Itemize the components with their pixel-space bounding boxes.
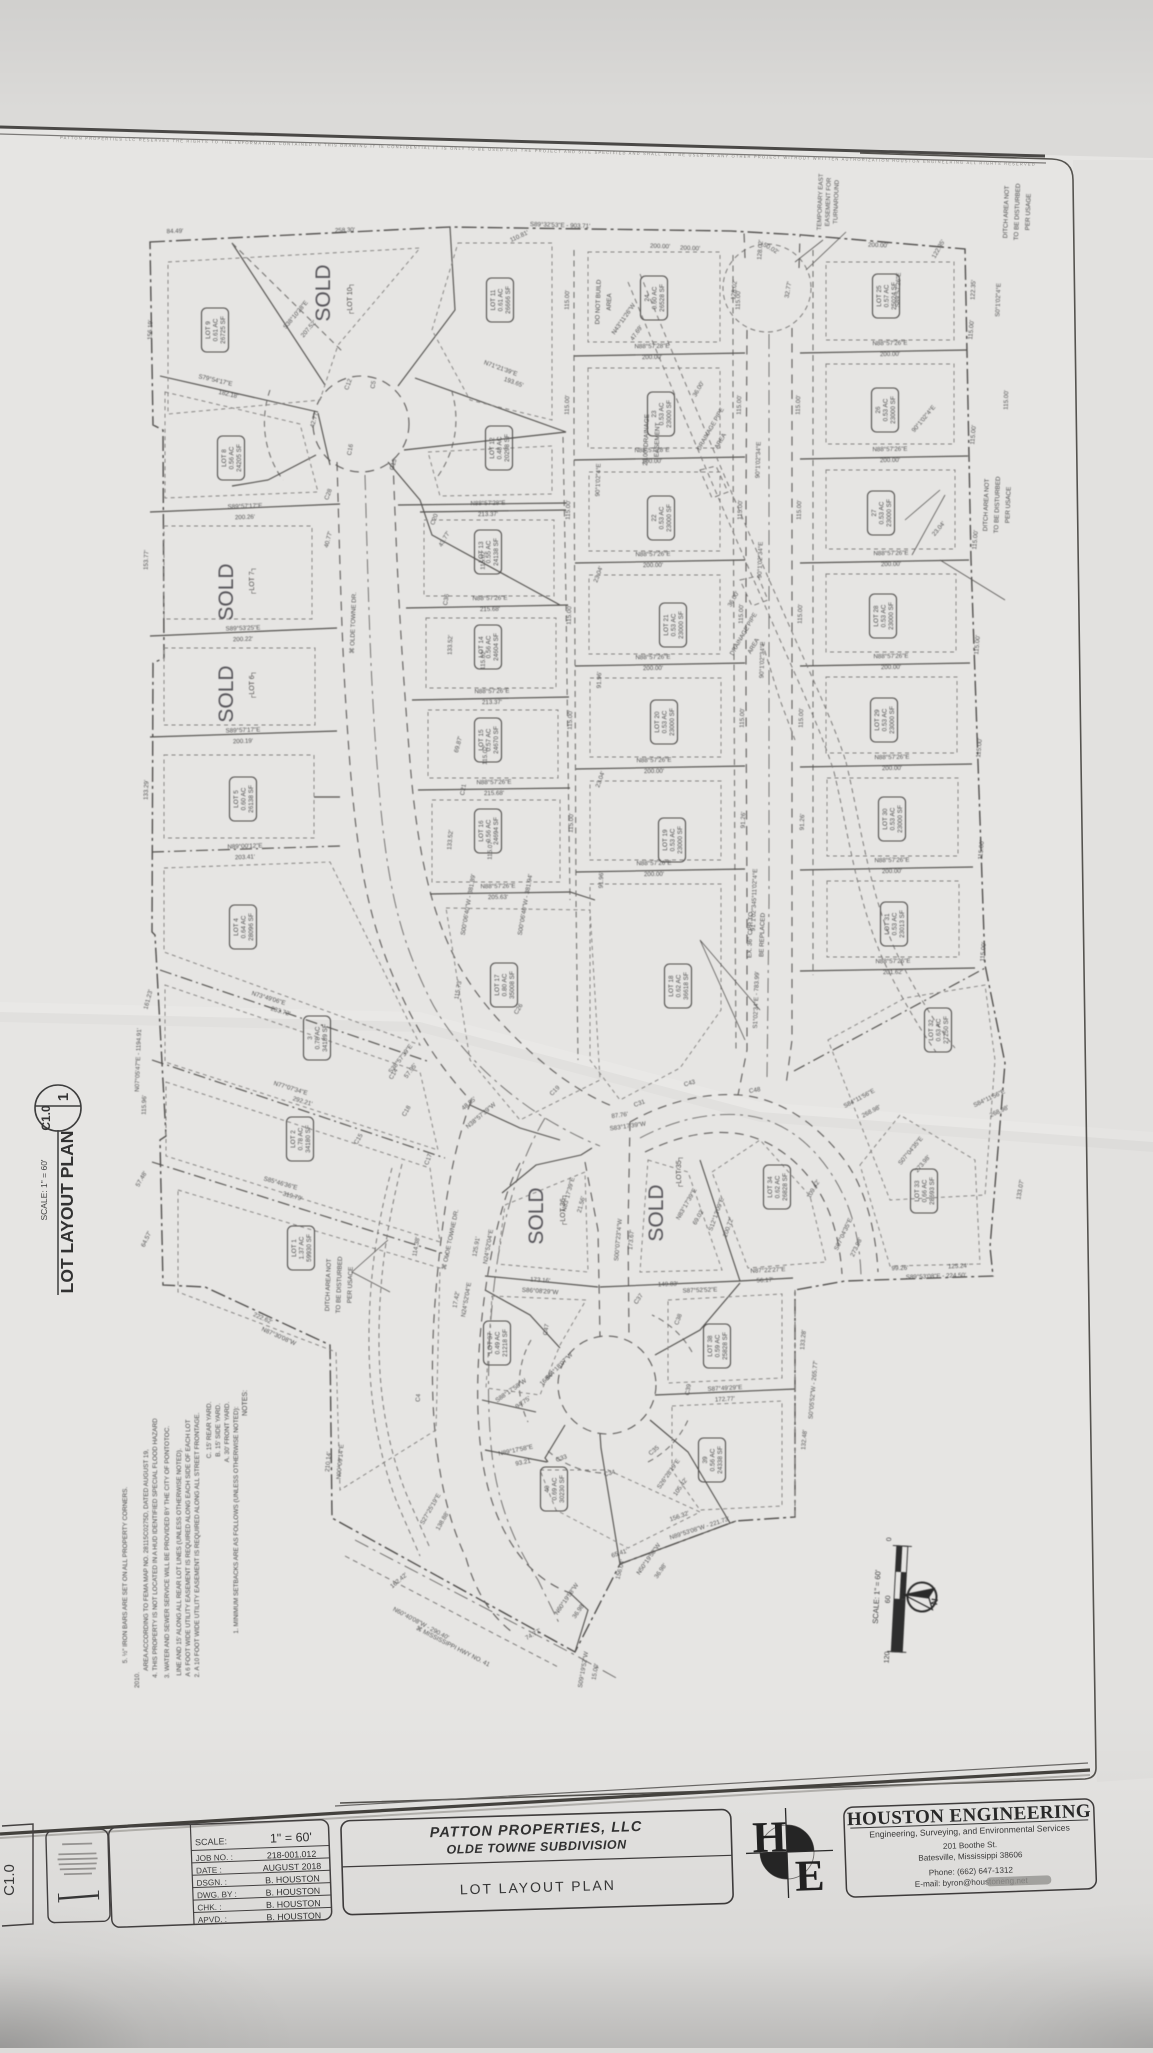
svg-text:EASEMENT: EASEMENT [653,422,661,457]
svg-text:LOT 20: LOT 20 [654,711,661,733]
svg-text:SOLD: SOLD [215,563,238,620]
svg-text:26666 SF: 26666 SF [505,286,512,314]
svg-text:99.26': 99.26' [891,1265,908,1273]
svg-text:LOT 19: LOT 19 [662,829,669,851]
svg-text:SOLD: SOLD [645,1184,668,1241]
svg-text:34189 SF: 34189 SF [322,1024,329,1052]
svg-text:200.00': 200.00' [643,665,663,672]
svg-text:A 6 FOOT WIDE UTILITY EASEMENT: A 6 FOOT WIDE UTILITY EASEMENT IS REQUIR… [185,1419,192,1676]
svg-text:2. A 10 FOOT WIDE UTILITY EAS: 2. A 10 FOOT WIDE UTILITY EASEMENT IS RE… [194,1412,201,1677]
svg-text:24138 SF: 24138 SF [493,538,500,566]
svg-text:90°1'02"34°E: 90°1'02"34°E [754,442,762,479]
svg-text:200.00': 200.00' [650,243,670,251]
svg-text:N88°57'26"E: N88°57'26"E [636,860,671,868]
svg-text:0: 0 [886,1537,893,1541]
svg-text:0.80 AC: 0.80 AC [502,973,509,996]
svg-text:LOT 5: LOT 5 [233,790,240,808]
svg-text:N88°57'26"E: N88°57'26"E [874,754,909,762]
svg-text:4. THIS PROPERTY IS NOT LOCAT: 4. THIS PROPERTY IS NOT LOCATED IN A HUD… [152,1418,159,1678]
svg-text:0.69 AC: 0.69 AC [552,1477,559,1500]
svg-text:SOLD: SOLD [215,665,238,722]
svg-text:0.57 AC: 0.57 AC [486,728,493,751]
svg-text:24670 SF: 24670 SF [493,726,500,754]
svg-text:0.57 AC: 0.57 AC [884,284,891,307]
svg-text:213.37': 213.37' [478,511,498,518]
svg-text:133.29': 133.29' [143,780,151,800]
svg-text:S0°1'02"4°E: S0°1'02"4°E [994,283,1002,317]
svg-text:115.00': 115.00' [567,710,575,730]
svg-text:115.00': 115.00' [737,500,745,520]
svg-text:N88°57'26"E: N88°57'26"E [872,340,907,348]
svg-text:115.00': 115.00' [566,605,574,625]
svg-text:NOTES:: NOTES: [242,1390,249,1416]
svg-text:125.24': 125.24' [948,1263,968,1271]
svg-text:24: 24 [644,294,651,302]
svg-text:215.68': 215.68' [484,790,504,797]
svg-text:205.63': 205.63' [488,894,508,901]
svg-text:133.52': 133.52' [447,635,455,655]
svg-text:0.66 AC: 0.66 AC [922,1179,929,1202]
svg-text:2010.: 2010. [134,1672,141,1688]
svg-text:LOT 13: LOT 13 [478,541,485,563]
svg-text:N88°57'26"E: N88°57'26"E [474,688,509,696]
svg-text:N88°57'26"E: N88°57'26"E [472,595,507,603]
svg-text:N88°57'26"E: N88°57'26"E [874,857,909,865]
svg-text:┌LOT 36┐: ┌LOT 36┐ [560,1193,567,1226]
svg-text:N88°57'28"E: N88°57'28"E [634,343,669,351]
svg-text:27250 SF: 27250 SF [943,1016,950,1044]
svg-text:LOT 21: LOT 21 [663,614,670,636]
svg-text:LOT 15: LOT 15 [478,729,485,751]
svg-text:0.48 AC: 0.48 AC [497,436,504,459]
svg-text:213.37': 213.37' [482,699,502,706]
svg-text:N88°57'26"E: N88°57'26"E [873,653,908,661]
svg-text:23: 23 [651,410,658,418]
svg-text:N89°00'12"E: N89°00'12"E [227,842,262,850]
svg-text:LOT 4: LOT 4 [233,918,240,936]
svg-text:23000 SF: 23000 SF [890,396,897,424]
svg-text:115.00': 115.00' [568,813,576,833]
svg-text:0.55 AC: 0.55 AC [486,540,493,563]
svg-text:0.53 AC: 0.53 AC [882,708,889,731]
svg-text:27: 27 [871,509,878,517]
svg-text:200.22': 200.22' [233,636,253,644]
svg-text:200.00': 200.00' [882,868,902,875]
svg-text:23000 SF: 23000 SF [897,805,904,833]
svg-text:120: 120 [884,1651,892,1663]
svg-text:156.19': 156.19' [147,320,155,340]
svg-text:200.00': 200.00' [882,765,902,772]
svg-text:PER USACE: PER USACE [1004,487,1012,524]
svg-text:0.60 AC: 0.60 AC [652,286,659,309]
svg-text:115.00': 115.00' [736,395,744,415]
svg-text:S89°57'17"E: S89°57'17"E [225,726,260,734]
svg-text:LOT 17: LOT 17 [494,974,501,996]
svg-text:203.41': 203.41' [235,854,255,862]
svg-text:0.61 AC: 0.61 AC [498,288,505,311]
svg-text:23000 SF: 23000 SF [677,826,684,854]
svg-text:60: 60 [885,1595,892,1603]
svg-text:0.56 AC: 0.56 AC [710,1448,717,1471]
svg-text:23000 SF: 23000 SF [889,706,896,734]
svg-text:0.62 AC: 0.62 AC [676,974,683,997]
svg-text:23013 SF: 23013 SF [899,910,906,938]
svg-text:0.60 AC: 0.60 AC [241,787,248,810]
svg-text:LOT 34: LOT 34 [767,1176,774,1198]
svg-text:N88°57'26"E: N88°57'26"E [875,958,910,966]
svg-text:115.00': 115.00' [1003,390,1011,410]
svg-text:0.63 AC: 0.63 AC [936,1018,943,1041]
svg-text:3: 3 [307,1036,314,1040]
svg-text:115.00': 115.00' [797,604,805,624]
svg-text:115.00': 115.00' [564,290,572,310]
svg-text:0.53 AC: 0.53 AC [659,402,666,425]
svg-text:N88°57'26"E: N88°57'26"E [636,757,671,765]
svg-text:0.53 AC: 0.53 AC [662,710,669,733]
svg-text:0.53 AC: 0.53 AC [890,807,897,830]
svg-text:200.19': 200.19' [233,738,253,746]
svg-text:LOT 37: LOT 37 [487,1332,494,1354]
svg-text:258.30': 258.30' [335,227,355,235]
svg-text:S87°52'52"E: S87°52'52"E [682,1286,717,1294]
svg-text:N88°57'26"E: N88°57'26"E [480,883,515,891]
svg-text:90°1'02"34°E: 90°1'02"34°E [756,542,764,579]
svg-text:0.53 AC: 0.53 AC [879,501,886,524]
svg-text:0.59 AC: 0.59 AC [715,1334,722,1357]
svg-text:LOT 1: LOT 1 [291,1239,298,1257]
svg-text:S89°57'17"E: S89°57'17"E [227,502,262,510]
svg-text:A. 30' FRONT YARD.: A. 30' FRONT YARD. [224,1402,231,1463]
svg-text:N88°57'26"E: N88°57'26"E [873,550,908,558]
svg-text:90°1'02"4°E: 90°1'02"4°E [594,463,602,496]
svg-text:LOT 33: LOT 33 [914,1180,921,1202]
svg-text:N88°57'28"E: N88°57'28"E [634,447,669,455]
svg-text:LOT 9: LOT 9 [205,321,212,339]
svg-text:5. ½" IRON BARS ARE SET ON AL: 5. ½" IRON BARS ARE SET ON ALL PROPERTY … [121,1487,129,1664]
svg-text:115.00': 115.00' [795,395,803,415]
svg-text:84.49': 84.49' [166,228,183,236]
svg-text:N88°57'26"E: N88°57'26"E [476,779,511,787]
svg-text:0.53 AC: 0.53 AC [883,398,890,421]
svg-text:26528 SF: 26528 SF [659,284,666,312]
svg-text:201.62': 201.62' [883,969,903,976]
svg-text:200.00': 200.00' [881,561,901,568]
svg-text:AREA ACCORDING TO FEMA MAP NO.: AREA ACCORDING TO FEMA MAP NO. 28115C027… [143,1449,150,1671]
svg-text:0.78 AC: 0.78 AC [315,1026,322,1049]
svg-text:91.96': 91.96' [598,871,606,888]
svg-text:59930 SF: 59930 SF [306,1234,313,1262]
svg-text:0.56 AC: 0.56 AC [486,635,493,658]
svg-text:91.26': 91.26' [799,813,807,830]
svg-text:PER USACE: PER USACE [346,1267,354,1304]
svg-text:24205 SF: 24205 SF [236,444,243,472]
svg-text:39: 39 [702,1456,709,1464]
svg-text:LOT 8: LOT 8 [221,449,228,467]
svg-text:25024 SF: 25024 SF [891,282,898,310]
svg-text:23000 SF: 23000 SF [886,499,893,527]
svg-text:LOT 31: LOT 31 [884,913,891,935]
svg-text:24694 SF: 24694 SF [493,817,500,845]
svg-text:34180 SF: 34180 SF [305,1125,312,1153]
svg-text:C. 15' REAR YARD.: C. 15' REAR YARD. [206,1401,213,1458]
svg-text:0.78 AC: 0.78 AC [298,1127,305,1150]
svg-text:LOT 32: LOT 32 [928,1019,935,1041]
svg-text:24604 SF: 24604 SF [493,633,500,661]
svg-text:SCALE: 1" = 60': SCALE: 1" = 60' [39,1159,49,1220]
svg-text:LOT 30: LOT 30 [882,808,889,830]
svg-text:1. MINIMUM SETBACKS ARE AS FO: 1. MINIMUM SETBACKS ARE AS FOLLOWS (UNLE… [233,1406,240,1633]
svg-text:26: 26 [875,406,882,414]
svg-text:C4: C4 [415,1393,423,1402]
svg-text:200.00': 200.00' [881,664,901,671]
svg-text:LOT 25: LOT 25 [876,285,883,307]
svg-text:153.77': 153.77' [143,550,151,570]
svg-text:┌LOT 35┐: ┌LOT 35┐ [676,1155,683,1188]
svg-text:0.56 AC: 0.56 AC [229,446,236,469]
svg-text:30230 SF: 30230 SF [559,1475,566,1503]
svg-text:N88°57'26"E: N88°57'26"E [635,654,670,662]
svg-text:3. WATER AND SEWER SERVICE WI: 3. WATER AND SEWER SERVICE WILL BE PROVI… [164,1426,171,1678]
svg-text:115.96': 115.96' [141,1095,149,1115]
svg-text:23000 SF: 23000 SF [669,708,676,736]
svg-text:115.00': 115.00' [796,500,804,520]
svg-text:N88°57'26"E: N88°57'26"E [635,551,670,559]
svg-text:115.00': 115.00' [739,708,747,728]
svg-text:S89°53'25"E: S89°53'25"E [225,624,260,632]
svg-text:115.00': 115.00' [738,604,746,624]
svg-text:40: 40 [544,1485,551,1493]
svg-text:PER USAGE: PER USAGE [1024,193,1032,230]
svg-text:1: 1 [55,1093,72,1101]
svg-text:28693 SF: 28693 SF [929,1177,936,1205]
svg-text:23000 SF: 23000 SF [678,611,685,639]
svg-text:200.00': 200.00' [644,871,664,878]
svg-text:0.62 AC: 0.62 AC [775,1175,782,1198]
svg-text:0.53 AC: 0.53 AC [659,506,666,529]
svg-text:LOT 16: LOT 16 [478,820,485,842]
svg-text:N88°57'28"E: N88°57'28"E [470,500,505,508]
svg-text:200.00': 200.00' [643,562,663,569]
svg-text:0.61 AC: 0.61 AC [213,318,220,341]
svg-text:0.53 AC: 0.53 AC [670,828,677,851]
svg-text:200.00': 200.00' [880,351,900,358]
svg-text:23000 SF: 23000 SF [666,504,673,532]
svg-text:1.37 AC: 1.37 AC [299,1236,306,1259]
svg-text:23000 SF: 23000 SF [888,602,895,630]
svg-text:200.00': 200.00' [680,245,700,253]
svg-text:215.68': 215.68' [480,606,500,613]
svg-text:AREA: AREA [606,292,614,310]
svg-text:LOT 28: LOT 28 [873,605,880,627]
svg-text:20298 SF: 20298 SF [504,434,511,462]
svg-text:21218 SF: 21218 SF [502,1329,509,1357]
svg-text:115.00': 115.00' [565,500,573,520]
svg-text:0.49 AC: 0.49 AC [495,1331,502,1354]
svg-text:91.96': 91.96' [596,671,604,688]
svg-text:0.53 AC: 0.53 AC [892,912,899,935]
svg-text:22: 22 [651,514,658,522]
svg-text:LOT 2: LOT 2 [290,1130,297,1148]
svg-text:B. 15' SIDE YARD.: B. 15' SIDE YARD. [215,1403,222,1457]
svg-text:SOLD: SOLD [312,264,335,321]
svg-text:90°1'02"34°E: 90°1'02"34°E [758,642,766,679]
svg-text:172.77': 172.77' [715,1395,735,1403]
svg-text:200.00': 200.00' [644,768,664,775]
svg-text:N: N [929,1598,940,1606]
svg-text:24338 SF: 24338 SF [717,1446,724,1474]
svg-text:LOT 18: LOT 18 [668,975,675,997]
svg-text:LOT 14: LOT 14 [478,636,485,658]
svg-text:SOLD: SOLD [525,1187,548,1244]
svg-text:LOT 38: LOT 38 [707,1335,714,1357]
svg-text:0.64 AC: 0.64 AC [241,915,248,938]
svg-text:0.56 AC: 0.56 AC [486,819,493,842]
svg-text:28096 SF: 28096 SF [248,913,255,941]
svg-text:LOT 29: LOT 29 [874,709,881,731]
svg-text:LINE AND 15' ALONG ALL REAR LO: LINE AND 15' ALONG ALL REAR LOT LINES (U… [176,1448,183,1676]
svg-text:LOT 12: LOT 12 [489,437,496,459]
svg-text:149.83': 149.83' [658,1281,678,1289]
svg-text:115.00': 115.00' [564,395,572,415]
svg-text:26725 SF: 26725 SF [220,316,227,344]
svg-text:┌LOT 7┐: ┌LOT 7┐ [249,566,256,595]
svg-text:N88°57'26"E: N88°57'26"E [872,446,907,454]
svg-text:C1.0: C1.0 [39,1105,53,1131]
svg-text:200.00': 200.00' [868,242,888,250]
svg-text:LOT 11: LOT 11 [490,289,497,310]
svg-text:56.17': 56.17' [756,1277,773,1285]
svg-text:35008 SF: 35008 SF [509,971,516,999]
svg-text:91.26': 91.26' [740,811,748,828]
svg-text:0.53 AC: 0.53 AC [881,604,888,627]
svg-text:23000 SF: 23000 SF [666,400,673,428]
svg-text:115.00': 115.00' [798,708,806,728]
svg-text:200.00': 200.00' [642,354,662,361]
svg-text:26138 SF: 26138 SF [248,785,255,813]
svg-text:┌LOT 10┐: ┌LOT 10┐ [347,282,354,315]
svg-text:26828 SF: 26828 SF [782,1173,789,1201]
svg-text:LOT LAYOUT PLAN: LOT LAYOUT PLAN [57,1131,77,1294]
svg-text:36618 SF: 36618 SF [683,972,690,1000]
svg-text:0.53 AC: 0.53 AC [671,613,678,636]
svg-text:122.35': 122.35' [969,280,977,300]
svg-text:┌LOT 6┐: ┌LOT 6┐ [249,670,256,699]
svg-text:173.16': 173.16' [530,1276,551,1284]
svg-text:200.26': 200.26' [235,514,255,522]
svg-text:200.00': 200.00' [880,457,900,464]
svg-text:25828 SF: 25828 SF [722,1332,729,1360]
